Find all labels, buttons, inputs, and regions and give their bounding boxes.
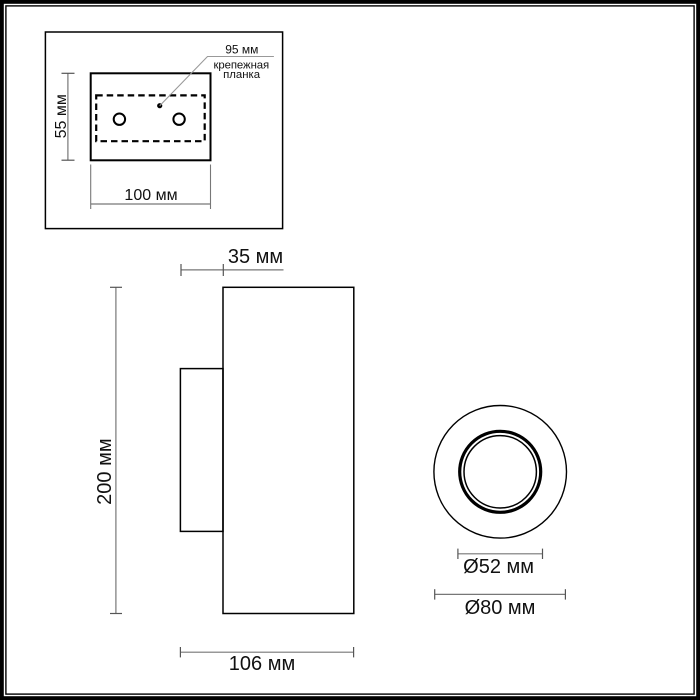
svg-text:Ø80 мм: Ø80 мм [465, 597, 536, 619]
svg-text:55 мм: 55 мм [53, 94, 70, 138]
svg-text:100 мм: 100 мм [124, 187, 177, 204]
svg-text:планка: планка [223, 69, 261, 81]
svg-text:35 мм: 35 мм [228, 246, 283, 268]
svg-text:200 мм: 200 мм [94, 438, 116, 504]
svg-text:95 мм: 95 мм [225, 43, 258, 57]
svg-text:Ø52 мм: Ø52 мм [463, 556, 534, 578]
svg-text:106 мм: 106 мм [229, 653, 295, 675]
